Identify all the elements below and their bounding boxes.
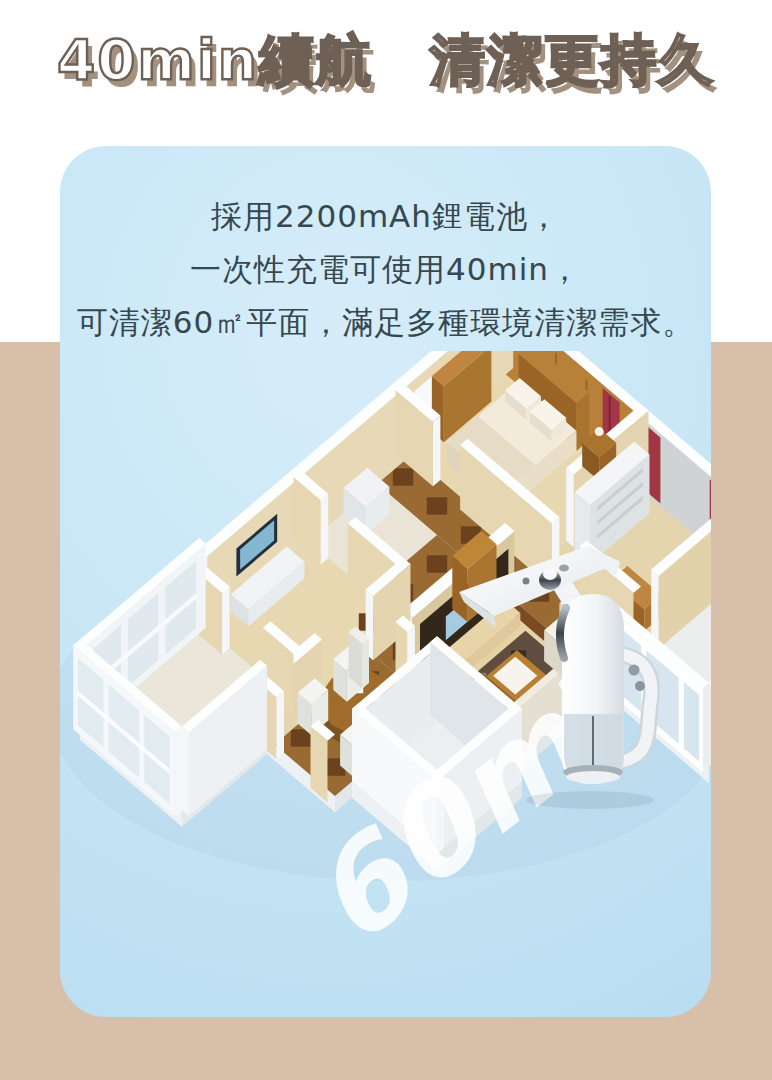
page-title: 40min續航 清潔更持久 [0, 24, 772, 98]
power-button [629, 665, 640, 676]
mode-button [635, 681, 645, 691]
mop-product [459, 546, 654, 809]
description-line-1: 採用2200mAh鋰電池， [60, 190, 711, 243]
pivot-cap [543, 568, 557, 580]
pivot-button [559, 565, 569, 572]
mop-head-logo [523, 578, 530, 585]
description-line-3: 可清潔60㎡平面，滿足多種環境清潔需求。 [60, 296, 711, 349]
product-shadow [526, 791, 654, 809]
product-illustration [442, 534, 672, 814]
battery-description: 採用2200mAh鋰電池， 一次性充電可使用40min， 可清潔60㎡平面，滿足… [60, 190, 711, 349]
battery-info-card: 採用2200mAh鋰電池， 一次性充電可使用40min， 可清潔60㎡平面，滿足… [60, 146, 711, 1017]
base-cap [566, 771, 620, 783]
product-marketing-page: 40min續航 清潔更持久 採用2200mAh鋰電池， 一次性充電可使用40mi… [0, 0, 772, 1080]
description-line-2: 一次性充電可使用40min， [60, 243, 711, 296]
